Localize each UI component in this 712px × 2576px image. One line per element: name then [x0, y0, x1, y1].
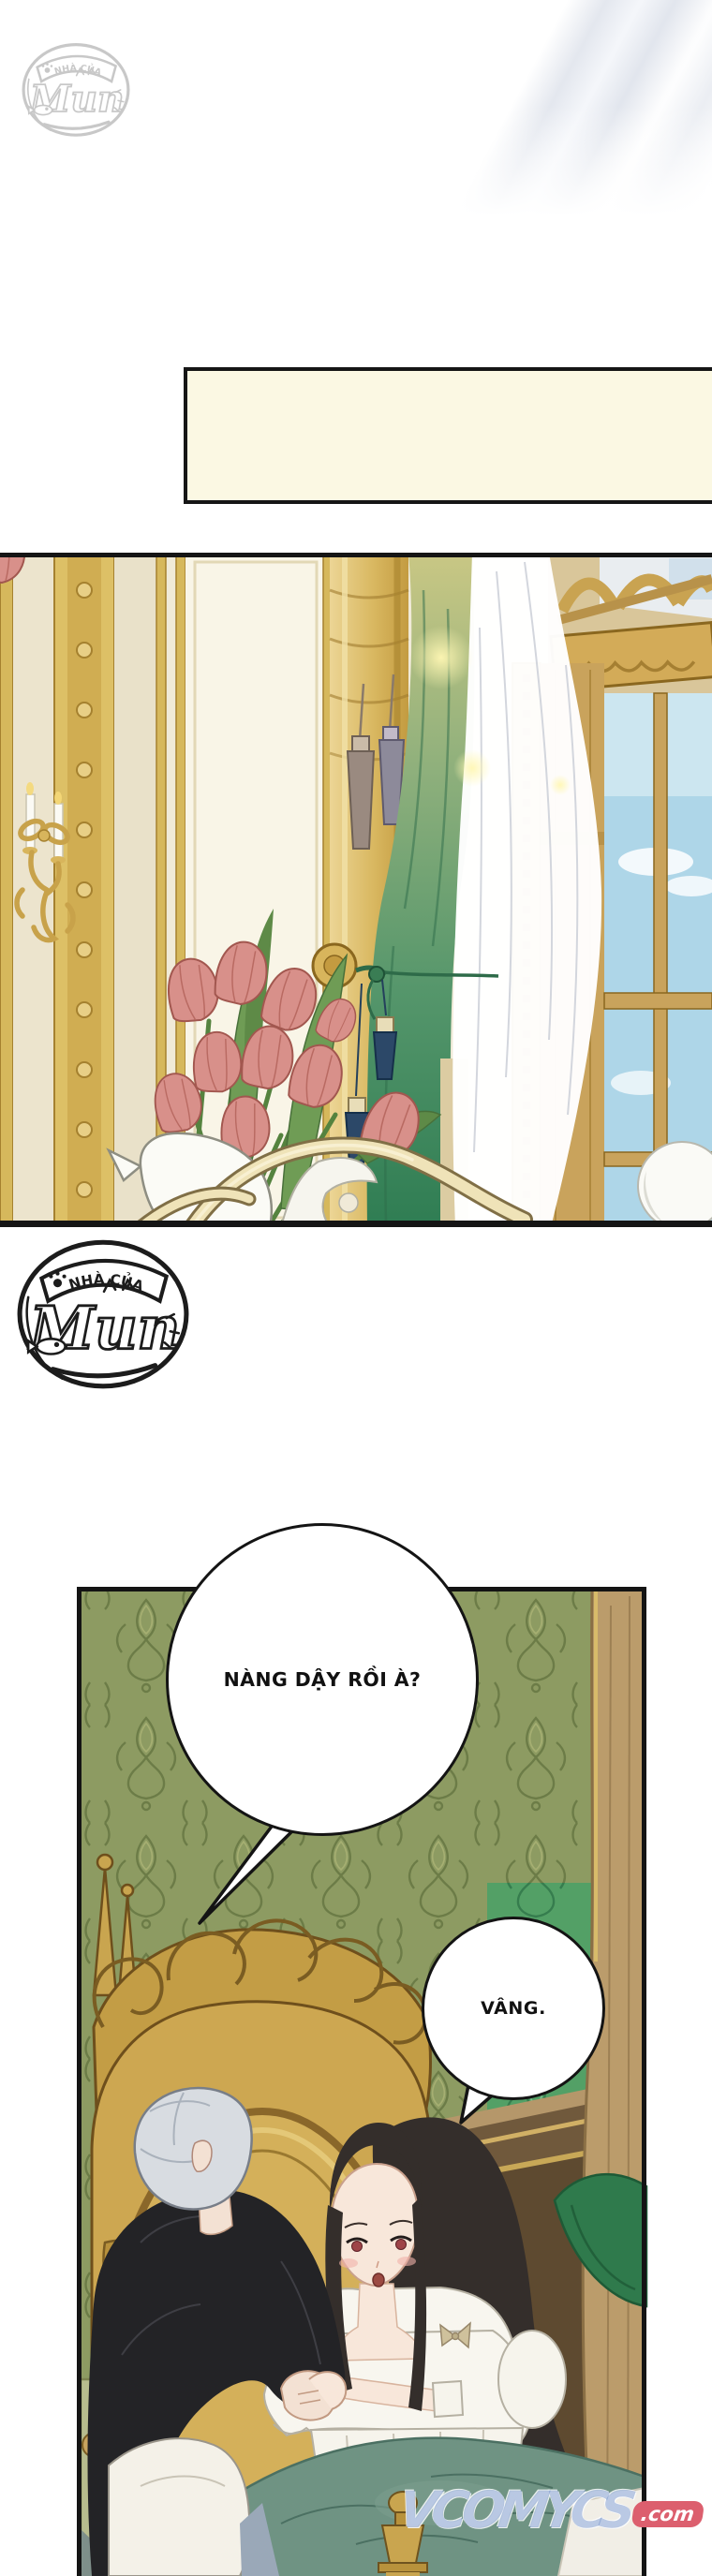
- panel-border-left: [77, 1587, 82, 2576]
- speech-bubble-1: NÀNG DẬY RỒI À?: [166, 1523, 479, 1836]
- panel-border-top: [0, 553, 712, 557]
- panel-border-bottom: [0, 1221, 712, 1227]
- publisher-stamp: [13, 1231, 193, 1392]
- canopy-column: [583, 1587, 646, 2576]
- speech-bubble-2: VÂNG.: [422, 1917, 605, 2100]
- site-watermark: VCOMYCS.com: [395, 2480, 712, 2539]
- caption-box: [184, 367, 712, 504]
- panel-palace-window: [0, 553, 712, 1227]
- speech-bubble-2-text: VÂNG.: [437, 1998, 589, 2019]
- watermark-domain-badge: .com: [630, 2501, 705, 2527]
- publisher-stamp-faint: [19, 37, 133, 139]
- watermark-text: VCOMYCS: [395, 2480, 634, 2539]
- speech-bubble-1-text: NÀNG DẬY RỒI À?: [197, 1668, 449, 1691]
- scan-streak-texture: [403, 0, 712, 234]
- panel-border-right: [642, 1587, 646, 2576]
- webtoon-page: NHÀ CỦA Mun: [0, 0, 712, 2576]
